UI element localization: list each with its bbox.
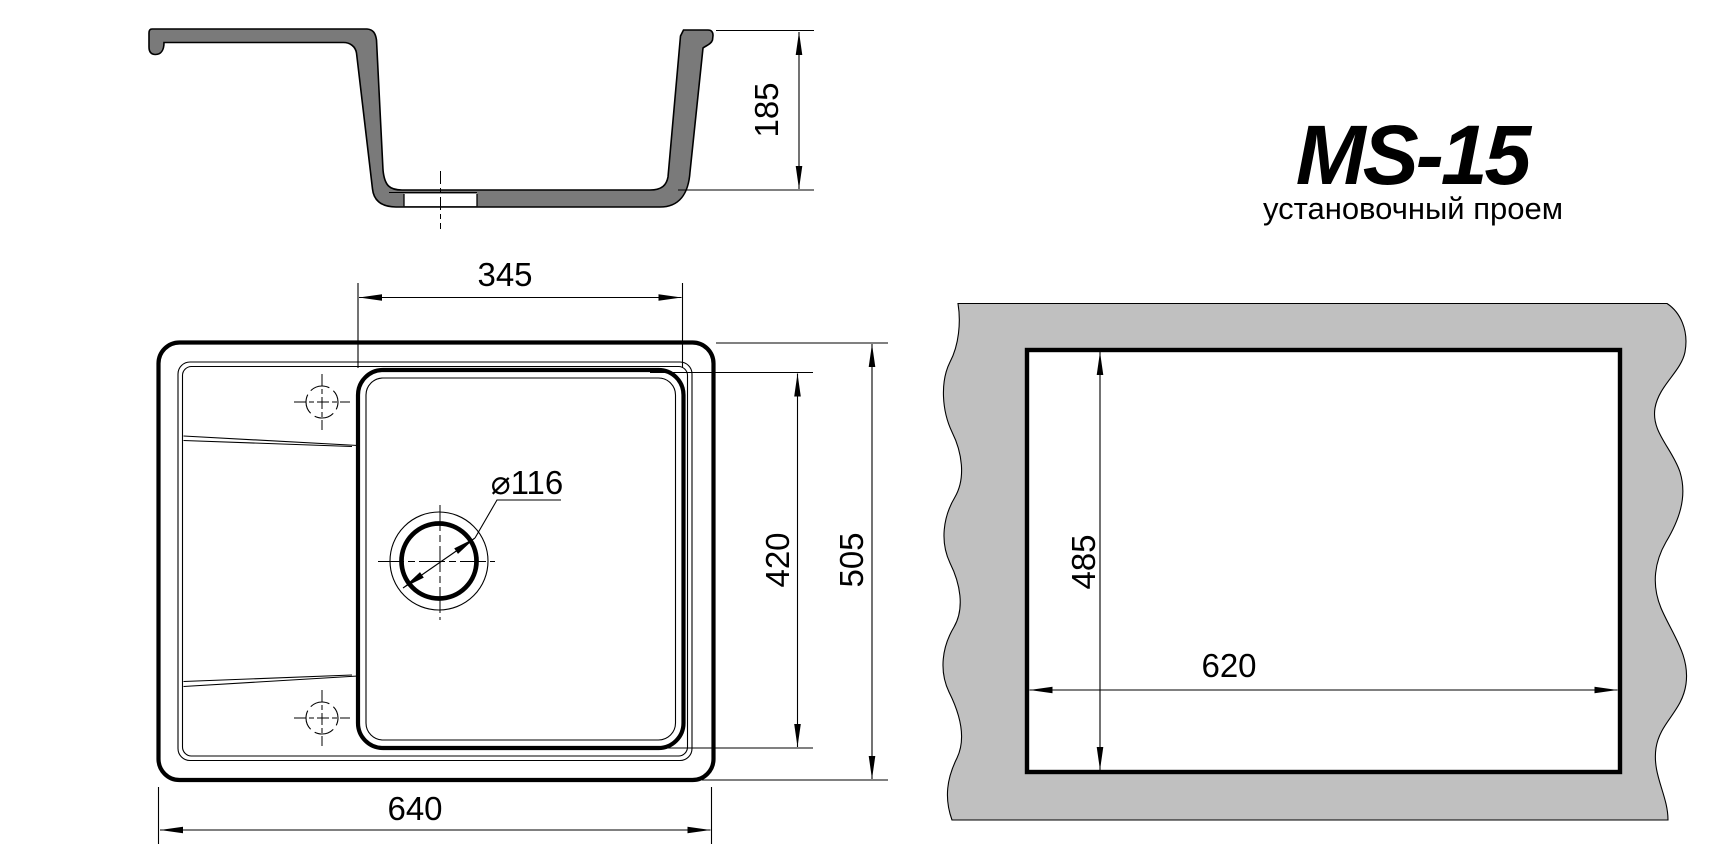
installation-cutout-view: 485 620 (943, 304, 1687, 821)
dim-label-overall-length: 505 (833, 532, 870, 587)
dim-label-overall-width: 640 (387, 790, 442, 827)
dim-label-opening-width: 620 (1201, 647, 1256, 684)
technical-drawing-sheet: 185 (0, 0, 1716, 858)
model-title: MS-15 (1296, 108, 1533, 202)
dim-label-opening-length: 485 (1065, 534, 1102, 589)
dim-label-drain-diameter: ⌀116 (491, 464, 563, 501)
model-subtitle: установочный проем (1263, 191, 1563, 226)
dim-label-depth: 185 (748, 82, 785, 137)
title-block: MS-15 установочный проем (1263, 108, 1563, 226)
cutout-opening (1027, 350, 1620, 772)
dim-label-bowl-width: 345 (477, 256, 532, 293)
sink-drawing-svg: 185 (0, 0, 1716, 858)
dim-label-bowl-length: 420 (759, 532, 796, 587)
